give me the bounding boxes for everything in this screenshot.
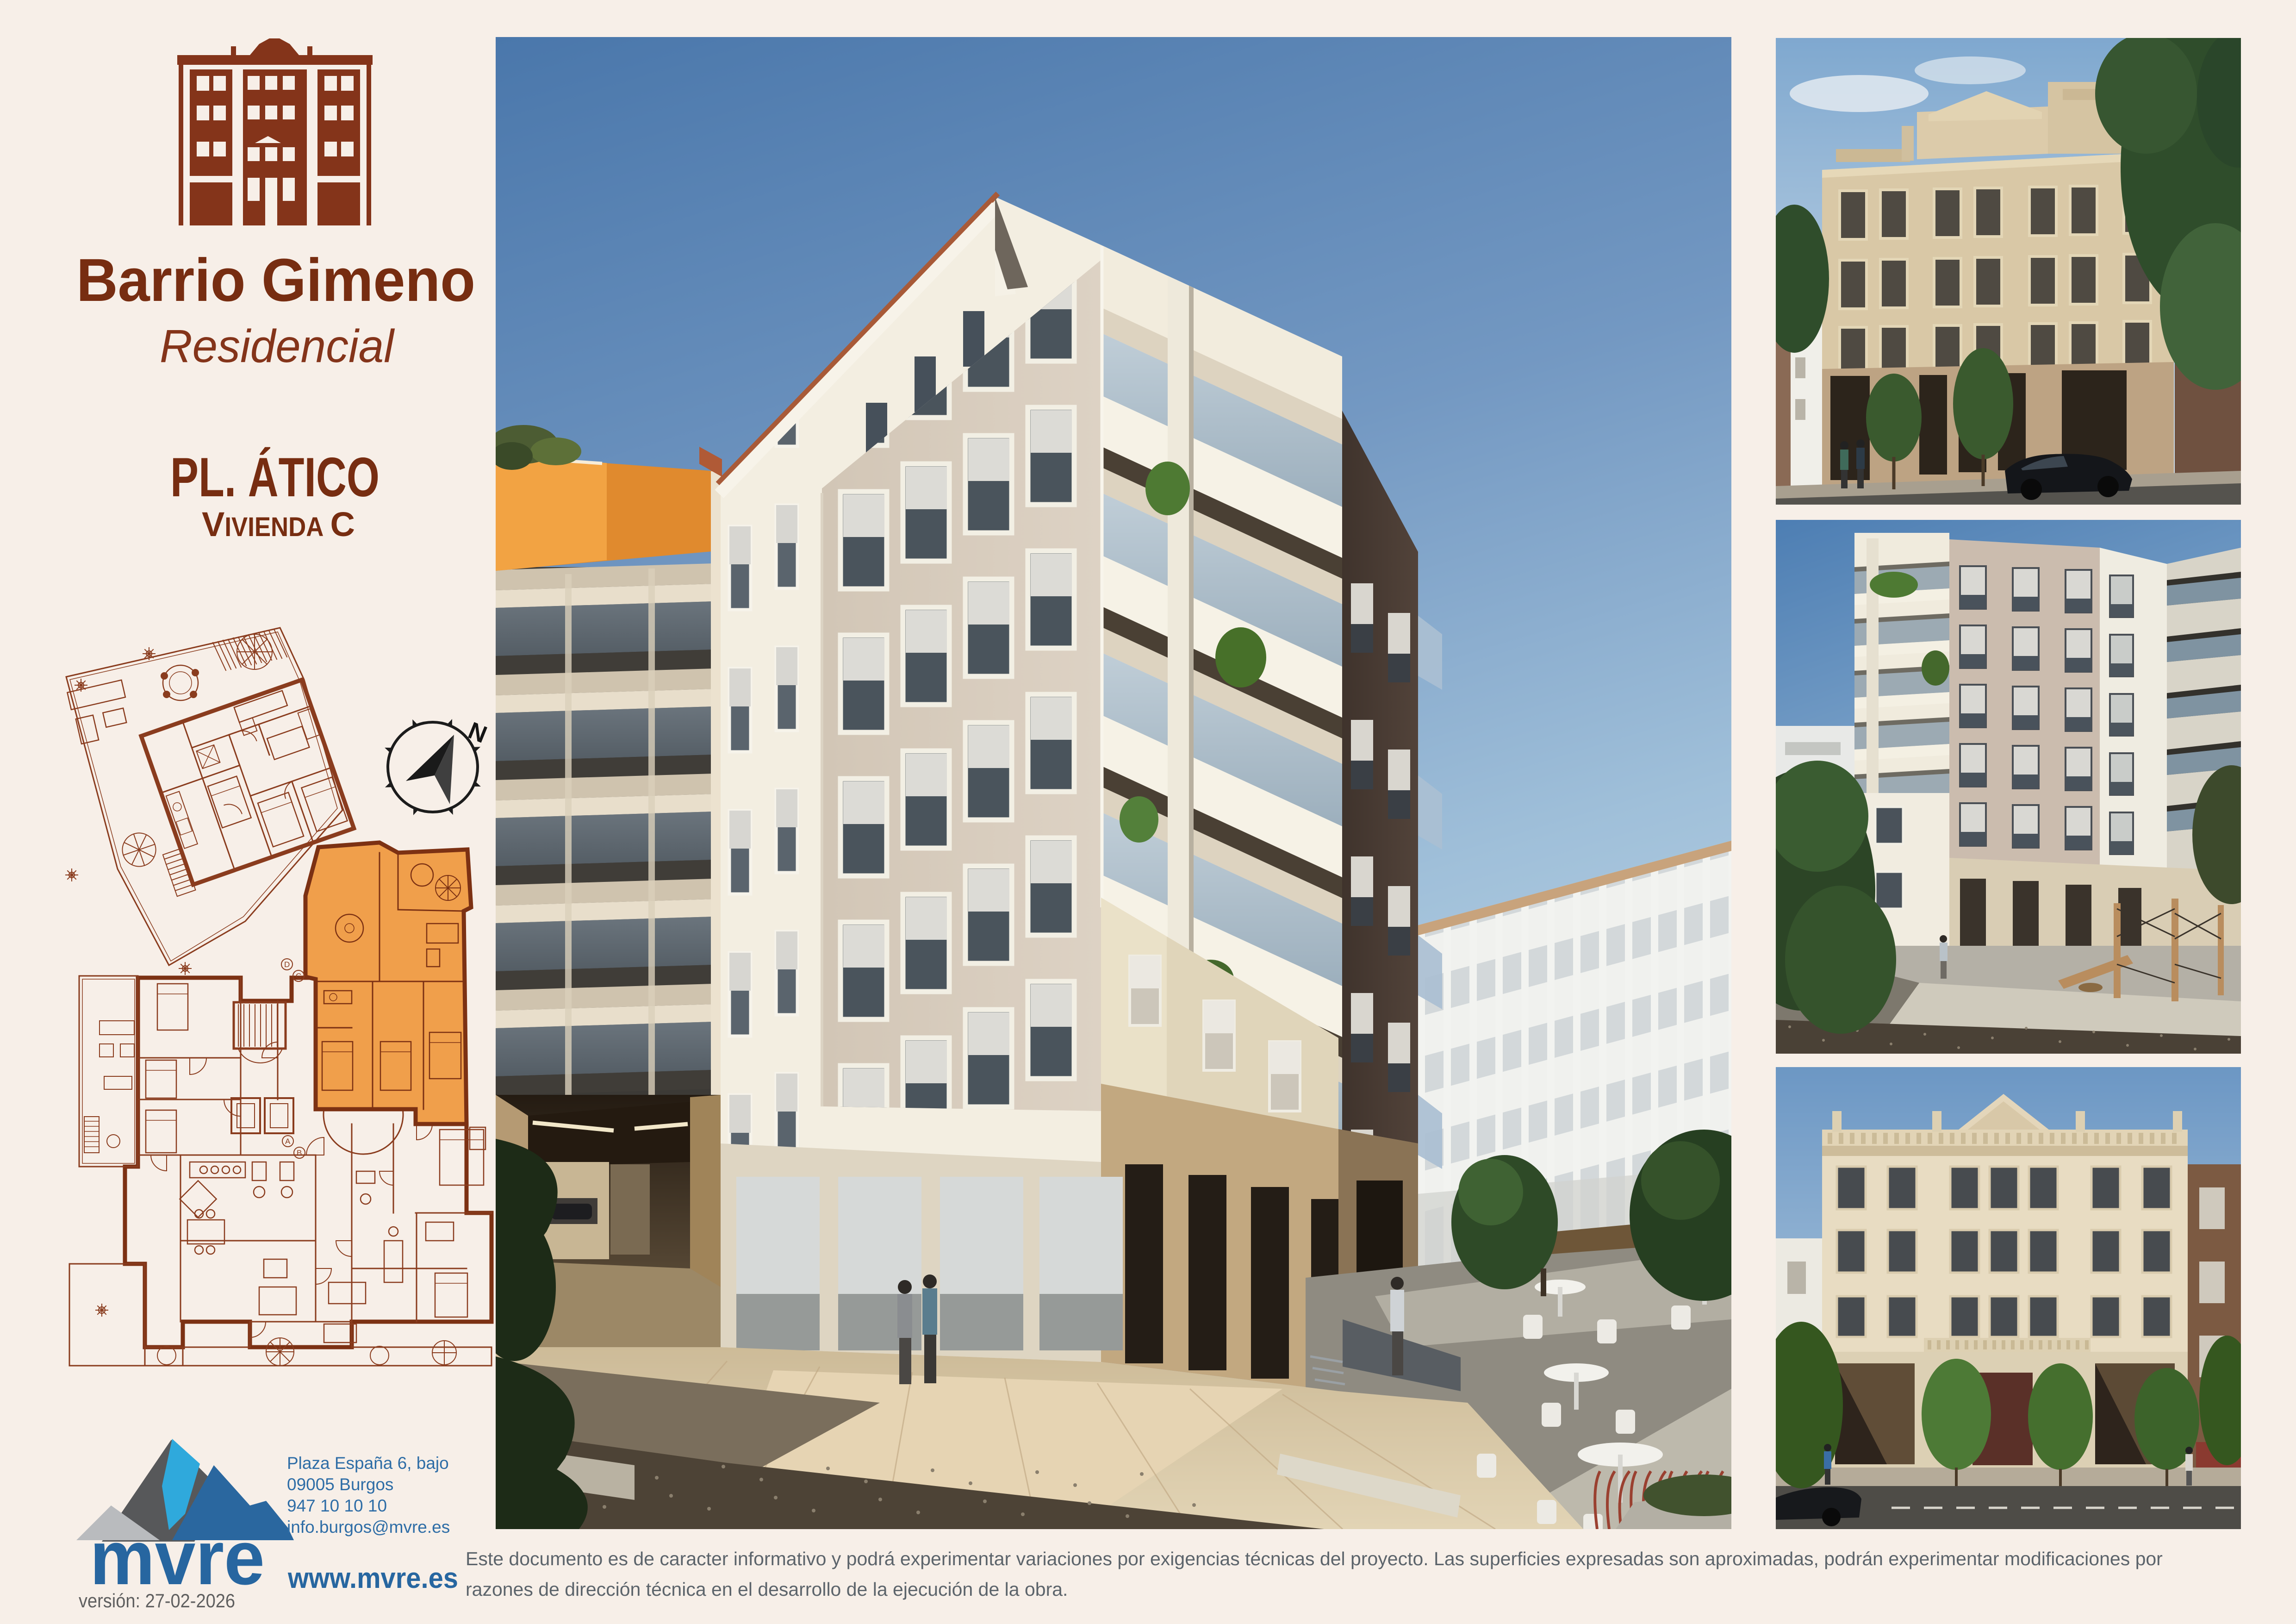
svg-text:N: N [465,717,491,749]
svg-text:C: C [296,972,301,981]
svg-text:VIVIENDA C: VIVIENDA C [202,505,355,543]
svg-text:B: B [297,1149,302,1157]
svg-text:mvre: mvre [90,1518,265,1597]
svg-text:Barrio Gimeno: Barrio Gimeno [76,246,475,314]
svg-text:www.mvre.es: www.mvre.es [287,1562,458,1594]
svg-text:PL. ÁTICO: PL. ÁTICO [170,446,380,508]
svg-text:A: A [285,1137,291,1146]
svg-text:versión: 27-02-2026: versión: 27-02-2026 [79,1590,235,1612]
svg-text:Residencial: Residencial [160,320,395,372]
svg-text:D: D [284,960,290,969]
